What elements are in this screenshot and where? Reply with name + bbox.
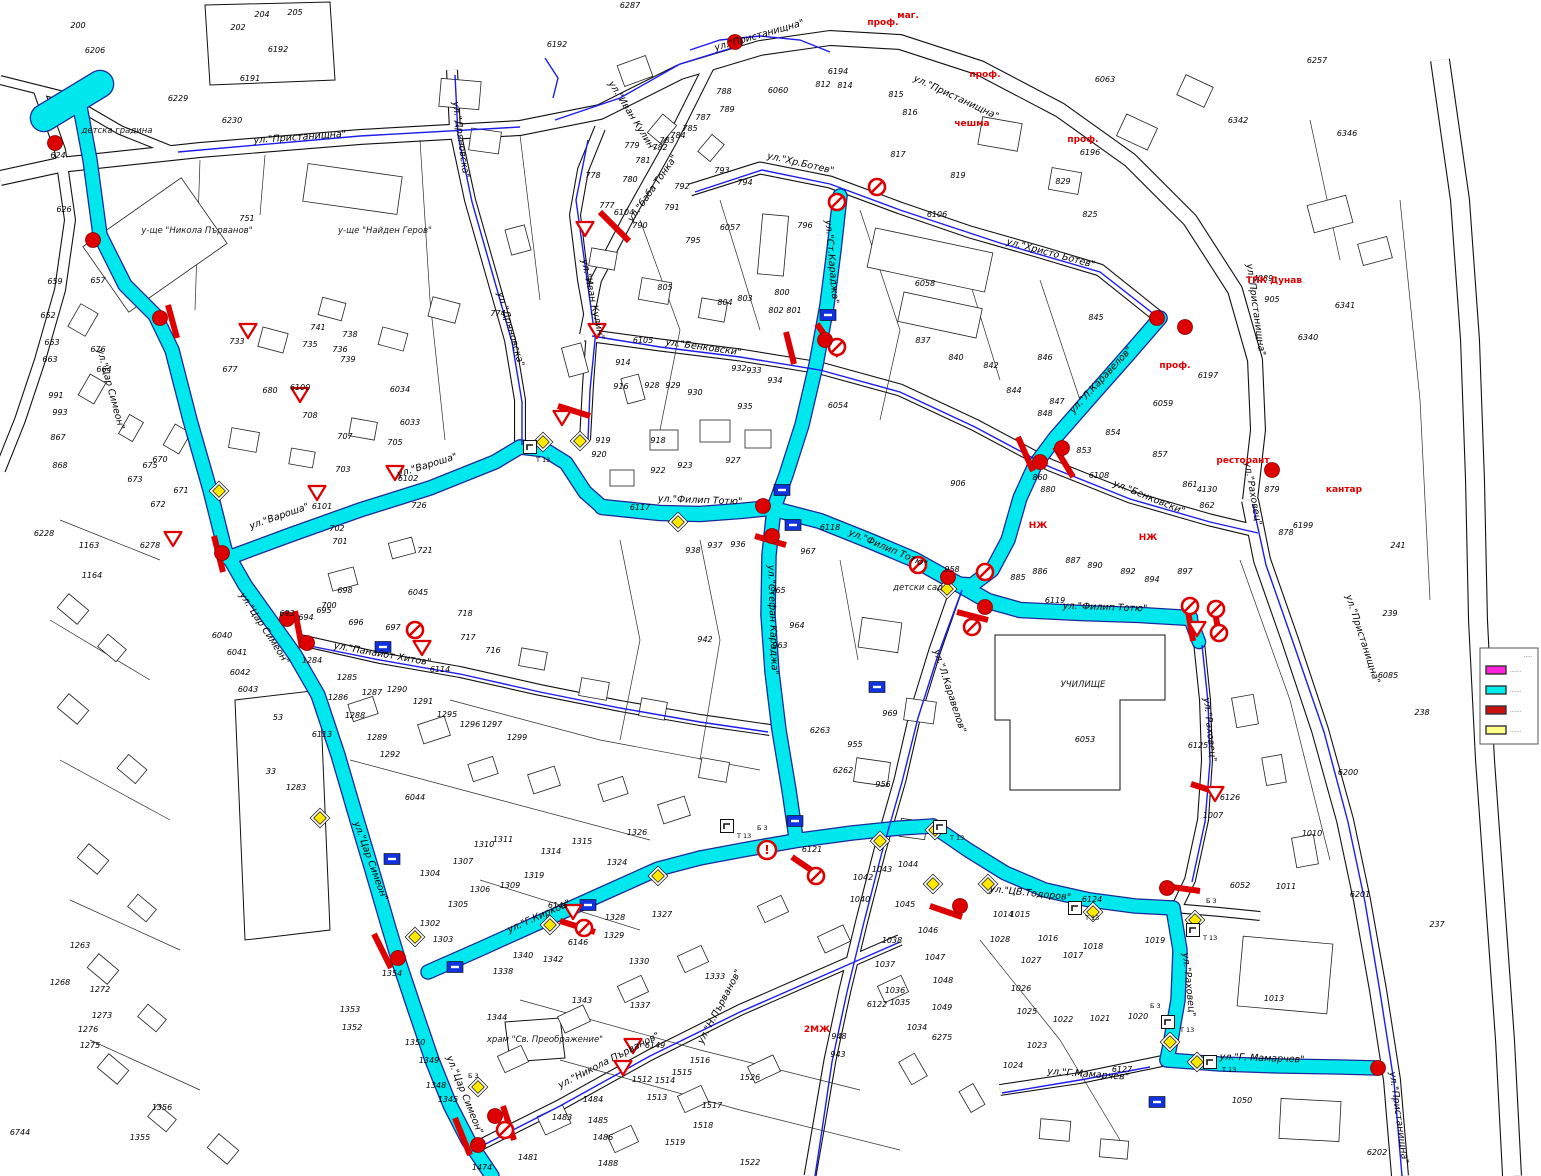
- house: [1292, 834, 1319, 867]
- network-node-marker[interactable]: [1371, 1061, 1386, 1076]
- parcel-number: 6230: [222, 116, 242, 125]
- parcel-number: 241: [1390, 541, 1405, 550]
- parcel-number: 6202: [1367, 1148, 1387, 1157]
- house: [207, 1134, 238, 1165]
- house: [228, 428, 259, 453]
- parcel-boundary-line: [420, 140, 445, 440]
- house: [98, 634, 127, 662]
- parcel-number: 991: [48, 391, 63, 400]
- house: [658, 796, 691, 824]
- parcel-number: 814: [837, 81, 852, 90]
- parcel-number: 6278: [140, 541, 160, 550]
- parcel-number: 1287: [362, 688, 383, 697]
- parcel-number: 204: [254, 10, 269, 19]
- parcel-number: 860: [1032, 473, 1047, 482]
- parcel-number: 1519: [665, 1138, 685, 1147]
- big-building: [205, 2, 335, 85]
- parcel-number: 6044: [405, 793, 425, 802]
- house: [1262, 754, 1287, 785]
- parcel-number: 837: [915, 336, 931, 345]
- info-sign-glyph: [873, 686, 881, 688]
- parcel-number: 801: [786, 306, 801, 315]
- house: [610, 470, 634, 486]
- parcel-number: 624: [50, 151, 65, 160]
- legend-swatch[interactable]: [1486, 726, 1506, 734]
- parcel-number: 892: [1120, 567, 1135, 576]
- parcel-number: 693: [279, 609, 294, 618]
- network-node-marker[interactable]: [1055, 441, 1070, 456]
- network-node-marker[interactable]: [953, 899, 968, 914]
- guide-sign[interactable]: [1187, 924, 1200, 937]
- parcel-number: 1292: [380, 750, 400, 759]
- legend-swatch[interactable]: [1486, 706, 1506, 714]
- network-node-marker[interactable]: [153, 311, 168, 326]
- house: [598, 776, 628, 801]
- legend-label: ·······: [1510, 689, 1522, 695]
- parcel-number: 825: [1082, 210, 1097, 219]
- parcel-number: 867: [50, 433, 66, 442]
- parcel-number: 6196: [1080, 148, 1100, 157]
- parcel-number: 6201: [1350, 890, 1370, 899]
- guide-sign[interactable]: [524, 441, 537, 454]
- parcel-number: 1046: [918, 926, 938, 935]
- parcel-number: 672: [150, 500, 165, 509]
- parcel-number: 1526: [740, 1073, 760, 1082]
- house: [899, 1053, 928, 1085]
- house: [698, 758, 729, 783]
- network-node-marker[interactable]: [756, 499, 771, 514]
- sign-code-label: Т 13: [535, 456, 550, 464]
- parcel-number: 1340: [513, 951, 533, 960]
- house: [1117, 114, 1158, 150]
- legend-title: ·····: [1524, 654, 1532, 660]
- parcel-number: 6106: [927, 210, 947, 219]
- parcel-number: 906: [950, 479, 965, 488]
- network-node-marker[interactable]: [1150, 311, 1165, 326]
- guide-sign[interactable]: [1069, 902, 1082, 915]
- guide-sign[interactable]: [721, 820, 734, 833]
- parcel-number: 237: [1429, 920, 1445, 929]
- parcel-number: 1311: [493, 835, 513, 844]
- parcel-number: 816: [902, 108, 917, 117]
- parcel-number: 239: [1382, 609, 1397, 618]
- parcel-number: 1044: [898, 860, 918, 869]
- parcel-number: 1350: [405, 1038, 425, 1047]
- network-node-marker[interactable]: [471, 1138, 486, 1153]
- house: [57, 694, 88, 725]
- parcel-number: 1028: [990, 935, 1010, 944]
- parcel-boundary-line: [260, 155, 265, 215]
- info-sign-glyph: [388, 858, 396, 860]
- parcel-number: 1050: [1232, 1096, 1252, 1105]
- yield-sign[interactable]: [240, 324, 257, 338]
- network-node-marker[interactable]: [215, 546, 230, 561]
- parcel-number: 1268: [50, 978, 70, 987]
- parcel-number: 1036: [885, 986, 905, 995]
- parcel-number: 6192: [268, 45, 288, 54]
- yield-sign[interactable]: [309, 486, 326, 500]
- house: [117, 754, 147, 783]
- parcel-number: 1048: [933, 976, 953, 985]
- parcel-number: 928: [644, 381, 659, 390]
- house: [68, 304, 98, 337]
- house: [289, 448, 315, 468]
- red-annotation: маг.: [897, 11, 919, 21]
- parcel-number: 1043: [872, 865, 892, 874]
- legend-swatch[interactable]: [1486, 686, 1506, 694]
- parcel-number: 1037: [875, 960, 896, 969]
- street-label: ул."Филип Тотю": [846, 527, 929, 571]
- network-node-marker[interactable]: [391, 951, 406, 966]
- parcel-number: 1328: [605, 913, 625, 922]
- parcel-number: 1319: [524, 871, 544, 880]
- parcel-number: 1338: [493, 967, 513, 976]
- parcel-number: 1291: [413, 697, 433, 706]
- red-annotation: ТПК Дунав: [1246, 276, 1302, 286]
- parcel-number: 1017: [1063, 951, 1084, 960]
- parcel-number: 880: [1040, 485, 1055, 494]
- parcel-boundary-line: [640, 220, 680, 430]
- parcel-number: 1310: [474, 840, 494, 849]
- parcel-number: 716: [485, 646, 500, 655]
- parcel-boundary-line: [60, 760, 170, 820]
- parcel-number: 1348: [426, 1081, 446, 1090]
- house: [757, 214, 788, 276]
- parcel-number: 6057: [720, 223, 741, 232]
- parcel-number: 6122: [867, 1000, 887, 1009]
- parcel-number: 927: [725, 456, 741, 465]
- parcel-number: 1517: [702, 1101, 723, 1110]
- house: [1232, 694, 1259, 727]
- sign-code-label: Т 13: [1202, 934, 1217, 942]
- parcel-number: 955: [847, 740, 862, 749]
- house: [303, 164, 402, 215]
- parcel-number: 817: [890, 150, 906, 159]
- map-canvas[interactable]: !Т 13Т 13Т 13Т 13Т 13Т 13Т 13Б 3Б 3Б 3Б …: [0, 0, 1541, 1176]
- house: [745, 430, 771, 448]
- house: [469, 128, 502, 154]
- parcel-number: 785: [682, 124, 697, 133]
- parcel-number: 717: [460, 633, 476, 642]
- parcel-number: 1011: [1276, 882, 1296, 891]
- parcel-number: 1344: [487, 1013, 507, 1022]
- parcel-number: 1263: [70, 941, 90, 950]
- parcel-number: 1484: [583, 1095, 603, 1104]
- parcel-number: 778: [585, 171, 600, 180]
- legend-label: ·······: [1510, 669, 1522, 675]
- parcel-number: 238: [1414, 708, 1429, 717]
- parcel-number: 6053: [1075, 735, 1095, 744]
- parcel-number: 6108: [1089, 471, 1109, 480]
- parcel-number: 6197: [1198, 371, 1219, 380]
- parcel-number: 929: [665, 381, 680, 390]
- guide-sign[interactable]: [1204, 1056, 1217, 1069]
- parcel-number: 887: [1065, 556, 1081, 565]
- parcel-number: 739: [340, 355, 355, 364]
- parcel-number: 1024: [1003, 1061, 1023, 1070]
- parcel-number: 6063: [1095, 75, 1115, 84]
- parcel-number: 1515: [672, 1068, 692, 1077]
- sign-code-label: Т 13: [1221, 1066, 1236, 1074]
- parcel-number: 1349: [419, 1056, 439, 1065]
- parcel-number: 1275: [80, 1041, 100, 1050]
- parcel-boundary-line: [1040, 280, 1080, 400]
- parcel-number: 804: [717, 298, 732, 307]
- parcel-number: 1021: [1090, 1014, 1110, 1023]
- house: [378, 327, 408, 351]
- parcel-number: 1163: [79, 541, 99, 550]
- landmark-label: храм "Св. Преображение": [486, 1035, 603, 1045]
- parcel-number: 1512: [632, 1075, 652, 1084]
- parcel-number: 6342: [1228, 116, 1248, 125]
- parcel-number: 6045: [408, 588, 428, 597]
- parcel-number: 736: [332, 345, 347, 354]
- parcel-number: 705: [387, 438, 402, 447]
- network-node-marker[interactable]: [765, 529, 780, 544]
- legend-swatch[interactable]: [1486, 666, 1506, 674]
- parcel-number: 6744: [10, 1128, 30, 1137]
- parcel-boundary-line: [60, 520, 160, 560]
- parcel-number: 657: [90, 276, 106, 285]
- red-annotation: НЖ: [1139, 533, 1158, 543]
- parcel-number: 1353: [340, 1005, 360, 1014]
- parcel-number: 696: [348, 618, 363, 627]
- network-node-marker[interactable]: [1178, 320, 1193, 335]
- house: [1177, 75, 1213, 108]
- parcel-number: 1329: [604, 931, 624, 940]
- house: [1237, 936, 1333, 1014]
- parcel-number: 958: [944, 565, 959, 574]
- big-building: [995, 635, 1165, 790]
- parcel-number: 1337: [630, 1001, 651, 1010]
- parcel-number: 751: [239, 214, 254, 223]
- parcel-number: 6052: [1230, 881, 1250, 890]
- sign-code-label: Т 13: [1179, 1026, 1194, 1034]
- network-node-marker[interactable]: [300, 636, 315, 651]
- parcel-number: 738: [342, 330, 357, 339]
- parcel-number: 1285: [337, 673, 357, 682]
- info-sign-glyph: [584, 904, 592, 906]
- parcel-number: 1299: [507, 733, 527, 742]
- parcel-number: 1276: [78, 1025, 98, 1034]
- parcel-number: 942: [697, 635, 712, 644]
- parcel-number: 1034: [907, 1023, 927, 1032]
- parcel-number: 794: [737, 178, 752, 187]
- parcel-number: 1290: [387, 685, 407, 694]
- legend-label: ·······: [1510, 709, 1522, 715]
- parcel-number: 969: [882, 709, 897, 718]
- utility-line: [545, 58, 558, 98]
- parcel-number: 1023: [1027, 1041, 1047, 1050]
- parcel-number: 905: [1264, 295, 1279, 304]
- parcel-number: 812: [815, 80, 830, 89]
- house: [258, 327, 288, 353]
- parcel-number: 6199: [1293, 521, 1313, 530]
- parcel-number: 792: [674, 182, 689, 191]
- house: [318, 297, 346, 321]
- parcel-number: 1516: [690, 1056, 710, 1065]
- parcel-number: 1355: [130, 1133, 150, 1142]
- parcel-number: 1018: [1083, 942, 1103, 951]
- red-annotation: кантар: [1326, 485, 1363, 495]
- house: [558, 1005, 591, 1033]
- network-node-marker[interactable]: [818, 333, 833, 348]
- house: [78, 374, 106, 404]
- parcel-number: 653: [44, 338, 59, 347]
- parcel-number: 721: [417, 546, 432, 555]
- parcel-number: 1345: [438, 1095, 458, 1104]
- parcel-number: 885: [1010, 573, 1025, 582]
- parcel-number: 934: [767, 376, 782, 385]
- parcel-number: 1324: [607, 858, 627, 867]
- parcel-number: 1025: [1017, 1007, 1037, 1016]
- highlight-road[interactable]: [602, 507, 770, 514]
- parcel-number: 1284: [302, 656, 322, 665]
- parcel-number: 6113: [312, 730, 332, 739]
- landmark-label: у-ще "Найден Геров": [337, 226, 432, 236]
- parcel-number: 1343: [572, 996, 592, 1005]
- parcel-number: 1306: [470, 885, 490, 894]
- parcel-number: 1483: [552, 1113, 572, 1122]
- network-node-marker[interactable]: [978, 600, 993, 615]
- parcel-number: 4130: [1197, 485, 1217, 494]
- info-sign-glyph: [778, 489, 786, 491]
- parcel-number: 862: [1199, 501, 1214, 510]
- house: [418, 716, 451, 744]
- parcel-number: 964: [789, 621, 804, 630]
- parcel-number: 1342: [543, 955, 563, 964]
- parcel-number: 708: [302, 411, 317, 420]
- parcel-number: 6126: [1220, 793, 1240, 802]
- parcel-number: 854: [1105, 428, 1120, 437]
- info-sign-glyph: [789, 524, 797, 526]
- landmark-label: детски сад: [892, 583, 943, 593]
- parcel-number: 805: [657, 283, 672, 292]
- parcel-number: 932: [731, 364, 746, 373]
- parcel-number: 1330: [629, 957, 649, 966]
- parcel-number: 853: [1076, 446, 1091, 455]
- parcel-number: 846: [1037, 353, 1052, 362]
- house: [138, 1004, 167, 1032]
- parcel-number: 741: [310, 323, 325, 332]
- parcel-number: 868: [52, 461, 67, 470]
- parcel-number: 1038: [882, 936, 902, 945]
- network-node-marker[interactable]: [1160, 881, 1175, 896]
- sign-code-label: Т 13: [736, 832, 751, 840]
- map-stage: !Т 13Т 13Т 13Т 13Т 13Т 13Т 13Б 3Б 3Б 3Б …: [0, 0, 1541, 1176]
- parcel-number: 930: [687, 388, 702, 397]
- parcel-number: 956: [875, 780, 890, 789]
- parcel-number: 673: [127, 475, 142, 484]
- house: [1039, 1119, 1071, 1142]
- parcel-number: 777: [599, 201, 615, 210]
- parcel-number: 6054: [828, 401, 848, 410]
- parcel-number: 937: [707, 541, 723, 550]
- parcel-number: 735: [302, 340, 317, 349]
- landmark-label: у-ще "Никола Първанов": [140, 226, 252, 236]
- street-label: ул."Христо Ботев": [1004, 236, 1096, 270]
- parcel-number: 702: [329, 524, 344, 533]
- house: [97, 1054, 128, 1085]
- house: [428, 297, 460, 324]
- house: [468, 756, 498, 781]
- parcel-number: 694: [298, 613, 313, 622]
- parcel-number: 890: [1087, 561, 1102, 570]
- parcel-number: 1488: [598, 1159, 618, 1168]
- parcel-number: 6287: [620, 1, 641, 10]
- parcel-number: 6228: [34, 529, 54, 538]
- parcel-number: 1354: [382, 969, 402, 978]
- parcel-number: 671: [173, 486, 188, 495]
- yield-sign[interactable]: [554, 411, 571, 425]
- parcel-number: 6101: [312, 502, 332, 511]
- parcel-number: 780: [622, 175, 637, 184]
- house: [818, 925, 851, 953]
- parcel-number: 919: [595, 436, 610, 445]
- house: [519, 648, 548, 670]
- sign-code-label: Т 13: [1084, 914, 1099, 922]
- parcel-number: 1010: [1302, 829, 1322, 838]
- parcel-number: 1049: [932, 1003, 952, 1012]
- house: [388, 537, 415, 559]
- parcel-number: 698: [337, 586, 352, 595]
- guide-sign[interactable]: [934, 821, 947, 834]
- info-sign-glyph: [824, 314, 832, 316]
- parcel-number: 1486: [593, 1133, 613, 1142]
- parcel-number: 1286: [328, 693, 348, 702]
- parcel-number: 800: [774, 288, 789, 297]
- parcel-number: 1020: [1128, 1012, 1148, 1021]
- parcel-number: 6262: [833, 766, 853, 775]
- house: [1307, 195, 1353, 232]
- house: [1279, 1098, 1341, 1141]
- info-sign-glyph: [451, 966, 459, 968]
- parcel-number: 6121: [802, 845, 822, 854]
- parcel-number: 943: [830, 1050, 845, 1059]
- network-node-marker[interactable]: [1033, 455, 1048, 470]
- parcel-number: 718: [457, 609, 472, 618]
- info-sign-glyph: [1153, 1101, 1161, 1103]
- house: [898, 292, 982, 338]
- network-node-marker[interactable]: [86, 233, 101, 248]
- sign-code-label: Б 3: [1206, 897, 1217, 905]
- network-node-marker[interactable]: [488, 1109, 503, 1124]
- network-node-marker[interactable]: [48, 136, 63, 151]
- parcel-number: 1315: [572, 837, 592, 846]
- parcel-number: 897: [1177, 567, 1193, 576]
- yield-sign[interactable]: [165, 532, 182, 546]
- parcel-number: 205: [287, 8, 302, 17]
- parcel-number: 829: [1055, 177, 1070, 186]
- parcel-number: 6194: [828, 67, 848, 76]
- house: [698, 134, 724, 161]
- highlight-road[interactable]: [228, 447, 520, 558]
- parcel-boundary-line: [980, 940, 1120, 1140]
- red-annotation: 2МЖ: [804, 1025, 830, 1035]
- parcel-number: 848: [1037, 409, 1052, 418]
- guide-sign[interactable]: [1162, 1016, 1175, 1029]
- house: [128, 894, 157, 922]
- parcel-number: 1307: [453, 857, 474, 866]
- parcel-number: 1522: [740, 1158, 760, 1167]
- parcel-number: 1481: [518, 1153, 538, 1162]
- parcel-number: 857: [1152, 450, 1168, 459]
- parcel-number: 847: [1049, 397, 1065, 406]
- house: [1099, 1139, 1128, 1159]
- parcel-number: 6229: [168, 94, 188, 103]
- street-label: ул."Пристанищна": [1343, 592, 1382, 685]
- yield-sign[interactable]: [414, 641, 431, 655]
